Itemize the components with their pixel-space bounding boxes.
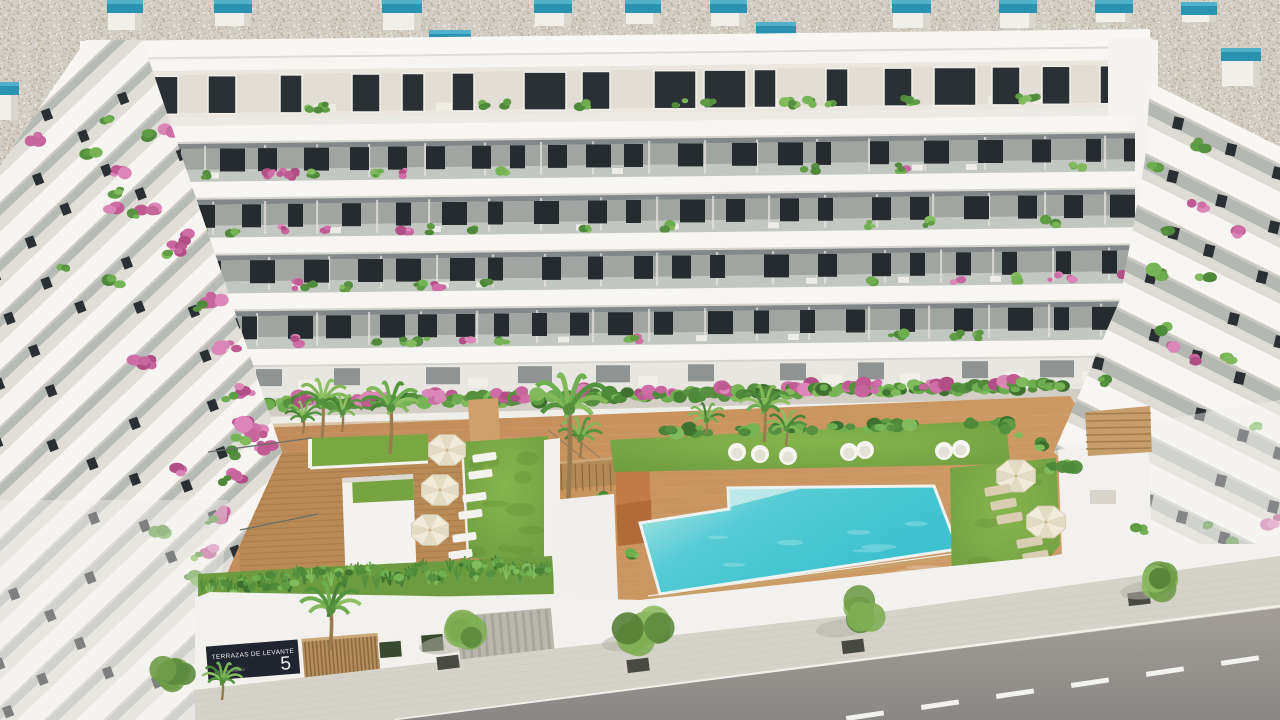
svg-text:5: 5 bbox=[280, 653, 292, 675]
